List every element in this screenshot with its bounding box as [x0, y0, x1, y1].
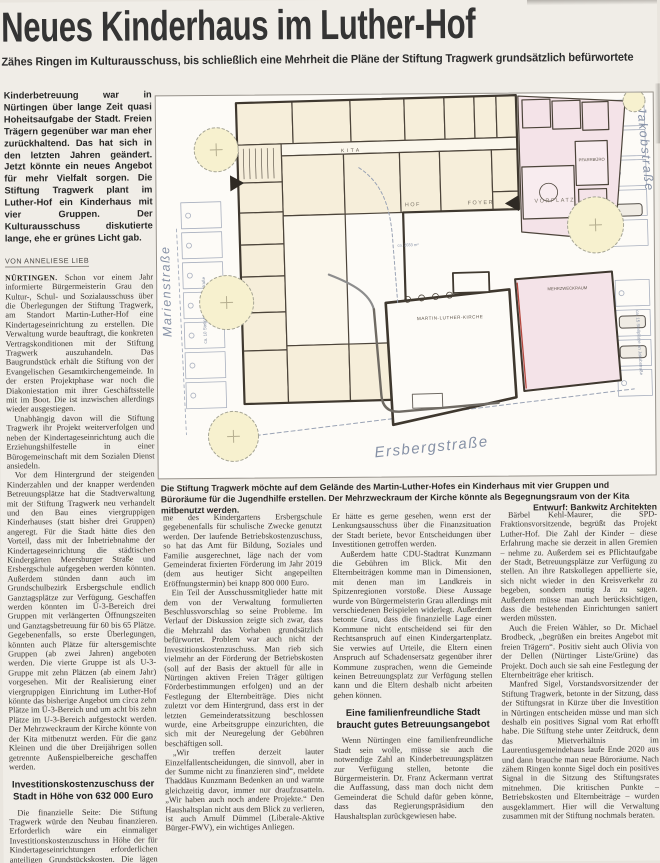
subheadline: Zähes Ringen im Kulturausschuss, bis sch… [1, 50, 657, 69]
article-paragraph: Vor dem Hintergrund der steigenden Kinde… [7, 470, 157, 772]
dateline: Nürtingen. [5, 273, 57, 282]
article-column-1: Kinderbetreuung war in Nürtingen über la… [4, 89, 158, 863]
floor-plan-drawing: ca. 10 Stellplätze an Marienstraße Marie… [156, 92, 656, 478]
pfarrbuero-label: PFARRBÜRO [579, 157, 606, 163]
article-paragraph: Auch die Freien Wähler, so Dr. Michael B… [501, 622, 658, 680]
street-label-ersbergstrasse: Ersbergstraße [374, 433, 490, 461]
hof-label: HOF [405, 202, 421, 208]
street-label-marienstrasse: Marienstraße [158, 245, 175, 337]
article-paragraph: Unabhängig davon will die Stiftung Tragw… [6, 413, 154, 471]
byline: Von Anneliese Lieb [5, 256, 89, 268]
paragraph-text: Schon vor einem Jahr informierte Bürgerm… [5, 272, 154, 414]
article-paragraph: Ein Teil der Ausschussmitglieder hatte m… [164, 587, 324, 748]
article-paragraph: Außerdem hatte CDU-Stadtrat Kunzmann die… [332, 548, 492, 700]
lede-paragraph: Kinderbetreuung war in Nürtingen über la… [4, 89, 153, 245]
crosshead-investment: Investitionskostenzuschuss der Stadt in … [11, 778, 155, 802]
article-paragraph: Wenn Nürtingen eine familienfreundliche … [334, 735, 494, 821]
floor-plan-figure: ca. 10 Stellplätze an Marienstraße Marie… [155, 91, 657, 479]
scan-artifact [527, 0, 657, 5]
article-paragraph: me des Kindergartens Ersbergschule gegeb… [163, 512, 323, 588]
crosshead-family-friendly: Eine familienfreundliche Stadt braucht g… [336, 706, 491, 730]
church-building [385, 289, 517, 425]
headline: Neues Kinderhaus im Luther-Hof [1, 1, 519, 51]
article-paragraph: „Wir treffen derzeit lauter Einzelfallen… [165, 747, 325, 833]
scanned-article: Neues Kinderhaus im Luther-Hof Zähes Rin… [0, 0, 660, 863]
article-paragraph: Die finanzielle Seite: Die Stiftung Trag… [9, 807, 157, 863]
vorplatz-label: VORPLATZ [534, 197, 575, 204]
article-paragraph: Nürtingen. Schon vor einem Jahr informie… [5, 272, 154, 414]
annotation-box [412, 393, 442, 408]
article-paragraph: Manfred Sigel, Vorstandsvorsitzender der… [501, 679, 659, 821]
article-paragraph: Bärbel Kehl-Maurer, die SPD-Fraktionsvor… [500, 509, 658, 623]
scan-artifact [655, 83, 660, 143]
article-paragraph: Er hätte es gerne gesehen, wenn erst der… [332, 511, 491, 550]
newspaper-page: Neues Kinderhaus im Luther-Hof Zähes Rin… [0, 0, 660, 863]
article-column-2: me des Kindergartens Ersbergschule gegeb… [163, 512, 325, 863]
foyer-label: FOYER [468, 200, 495, 207]
street-label-jakobstrasse: Jakobstraße [634, 105, 656, 192]
article-column-3: Er hätte es gerne gesehen, wenn erst der… [332, 511, 494, 863]
church-porch [453, 272, 490, 293]
article-column-4: Bärbel Kehl-Maurer, die SPD-Fraktionsvor… [500, 509, 660, 861]
hof-area-label: ca. 2033 m² [397, 242, 419, 248]
property-boundary [176, 229, 186, 435]
kita-label: KITA [341, 148, 362, 155]
